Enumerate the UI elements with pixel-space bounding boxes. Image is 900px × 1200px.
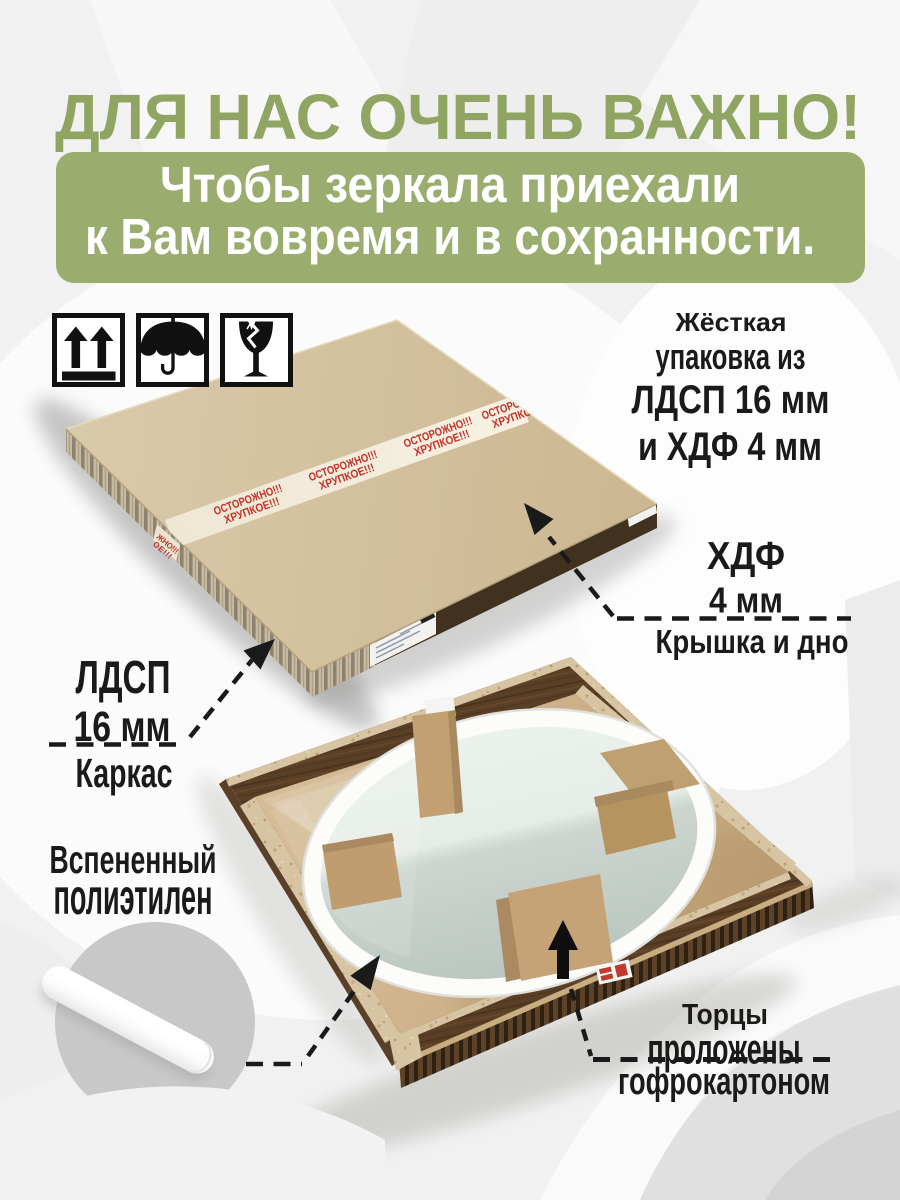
svg-text:Каркас: Каркас (76, 750, 173, 796)
svg-text:полиэтилен: полиэтилен (54, 869, 213, 925)
svg-text:Жёсткая: Жёсткая (674, 307, 786, 337)
svg-text:упаковка из: упаковка из (656, 336, 806, 377)
svg-text:ЛДСП 16 мм: ЛДСП 16 мм (632, 378, 830, 422)
svg-text:ХДФ: ХДФ (707, 535, 785, 578)
svg-text:4 мм: 4 мм (709, 580, 783, 621)
svg-text:Чтобы зеркала приехали: Чтобы зеркала приехали (160, 156, 740, 213)
svg-text:Крышка и дно: Крышка и дно (656, 623, 849, 660)
svg-text:к Вам вовремя и в сохранности.: к Вам вовремя и в сохранности. (85, 208, 815, 265)
svg-text:ЛДСП: ЛДСП (76, 651, 171, 703)
svg-text:гофрокартоном: гофрокартоном (618, 1061, 830, 1103)
svg-text:ДЛЯ НАС ОЧЕНЬ ВАЖНО!: ДЛЯ НАС ОЧЕНЬ ВАЖНО! (55, 81, 861, 153)
svg-text:и ХДФ 4 мм: и ХДФ 4 мм (638, 425, 822, 469)
